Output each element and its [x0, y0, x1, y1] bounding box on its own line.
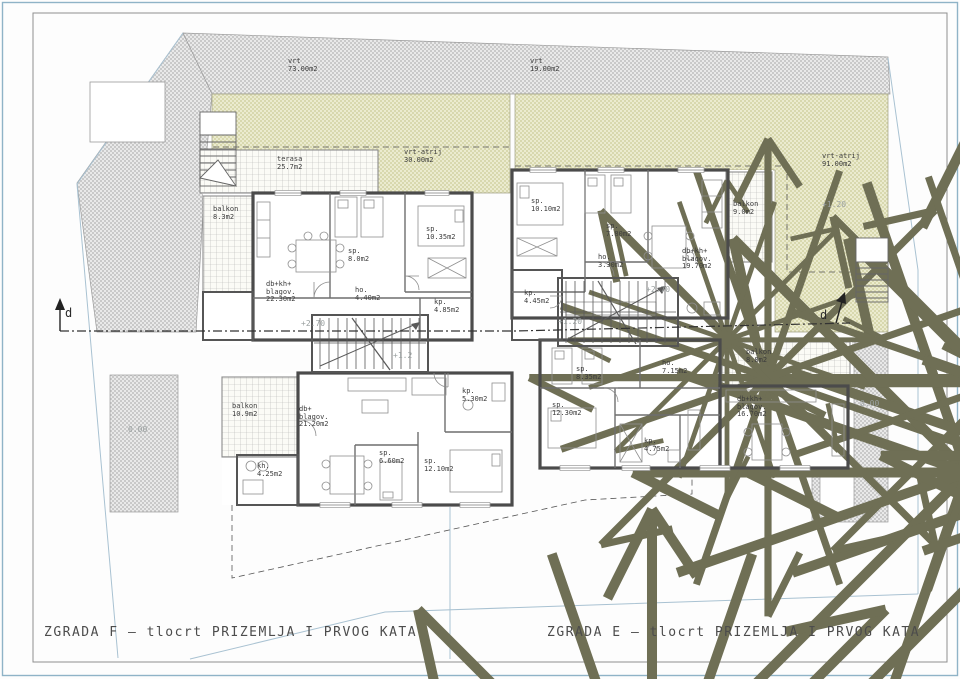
- label-vrt-atrij-30: vrt-atrij30.00m2: [404, 149, 442, 164]
- label-sp-1035: sp.10.35m2: [426, 226, 456, 241]
- label-level-120-e: +1.20: [558, 318, 582, 326]
- label-kp-475: kp.4.75m2: [644, 438, 669, 453]
- label-vrt-73: vrt73.00m2: [288, 58, 318, 73]
- label-level-000-right: 0.00: [860, 400, 879, 408]
- label-sp-660: sp.6.60m2: [379, 450, 404, 465]
- label-kp-530: kp.5.30m2: [462, 388, 487, 403]
- label-sp-1010: sp.10.10m2: [531, 198, 561, 213]
- label-ho-715: ho.7.15m2: [662, 360, 687, 375]
- floor-plan-sheet: vrt73.00m2 vrt19.00m2 terasa25.7m2 vrt-a…: [0, 0, 960, 679]
- label-kp-445: kp.4.45m2: [524, 290, 549, 305]
- label-sp-835: sp.8.35m2: [576, 366, 601, 381]
- title-zgrada-e: ZGRADA E — tlocrt PRIZEMLJA I PRVOG KATA: [547, 625, 920, 640]
- label-kh-425: kh.4.25m2: [257, 463, 282, 478]
- label-sp-1230: sp.12.30m2: [552, 402, 582, 417]
- label-level-270-e: +2.70: [646, 286, 670, 294]
- plan-drawing: [0, 0, 960, 679]
- label-kp-485: kp.4.85m2: [434, 299, 459, 314]
- label-level-12-f: +1.2: [393, 352, 412, 360]
- label-db-f-lower: db+blagov.21.20m2: [299, 406, 329, 429]
- label-vrt-19: vrt19.00m2: [530, 58, 560, 73]
- label-sp-780: sp.7.80m2: [606, 223, 631, 238]
- section-letter-d-left: d: [65, 310, 72, 318]
- label-db-f-upper: db+kh+blagov.22.30m2: [266, 281, 296, 304]
- label-level-000-left: 0.00: [128, 426, 147, 434]
- label-level-270-f: +2.70: [301, 320, 325, 328]
- section-letter-d-right: d: [820, 312, 827, 320]
- section-marker-left: [55, 298, 65, 331]
- label-db-e-upper: db+kh+blagov.19.70m2: [682, 248, 712, 271]
- label-ho-440: ho.4.40m2: [355, 287, 380, 302]
- label-level-120-atrij: +1.20: [822, 201, 846, 209]
- label-balkon-88: balkon8.8m2: [746, 349, 771, 364]
- label-terasa: terasa25.7m2: [277, 156, 302, 171]
- label-sp-80: sp.8.0m2: [348, 248, 369, 263]
- label-balkon-83: balkon8.3m2: [213, 206, 238, 221]
- label-balkon-109: balkon10.9m2: [232, 403, 257, 418]
- label-vrt-atrij-91: vrt-atrij91.00m2: [822, 153, 860, 168]
- label-ho-330: ho.3.30m2: [598, 254, 623, 269]
- title-zgrada-f: ZGRADA F — tlocrt PRIZEMLJA I PRVOG KATA: [44, 625, 417, 640]
- label-db-e-lower: db+kh+blagov.16.70m2: [737, 396, 767, 419]
- label-sp-1210: sp.12.10m2: [424, 458, 454, 473]
- label-balkon-90: balkon9.0m2: [733, 201, 758, 216]
